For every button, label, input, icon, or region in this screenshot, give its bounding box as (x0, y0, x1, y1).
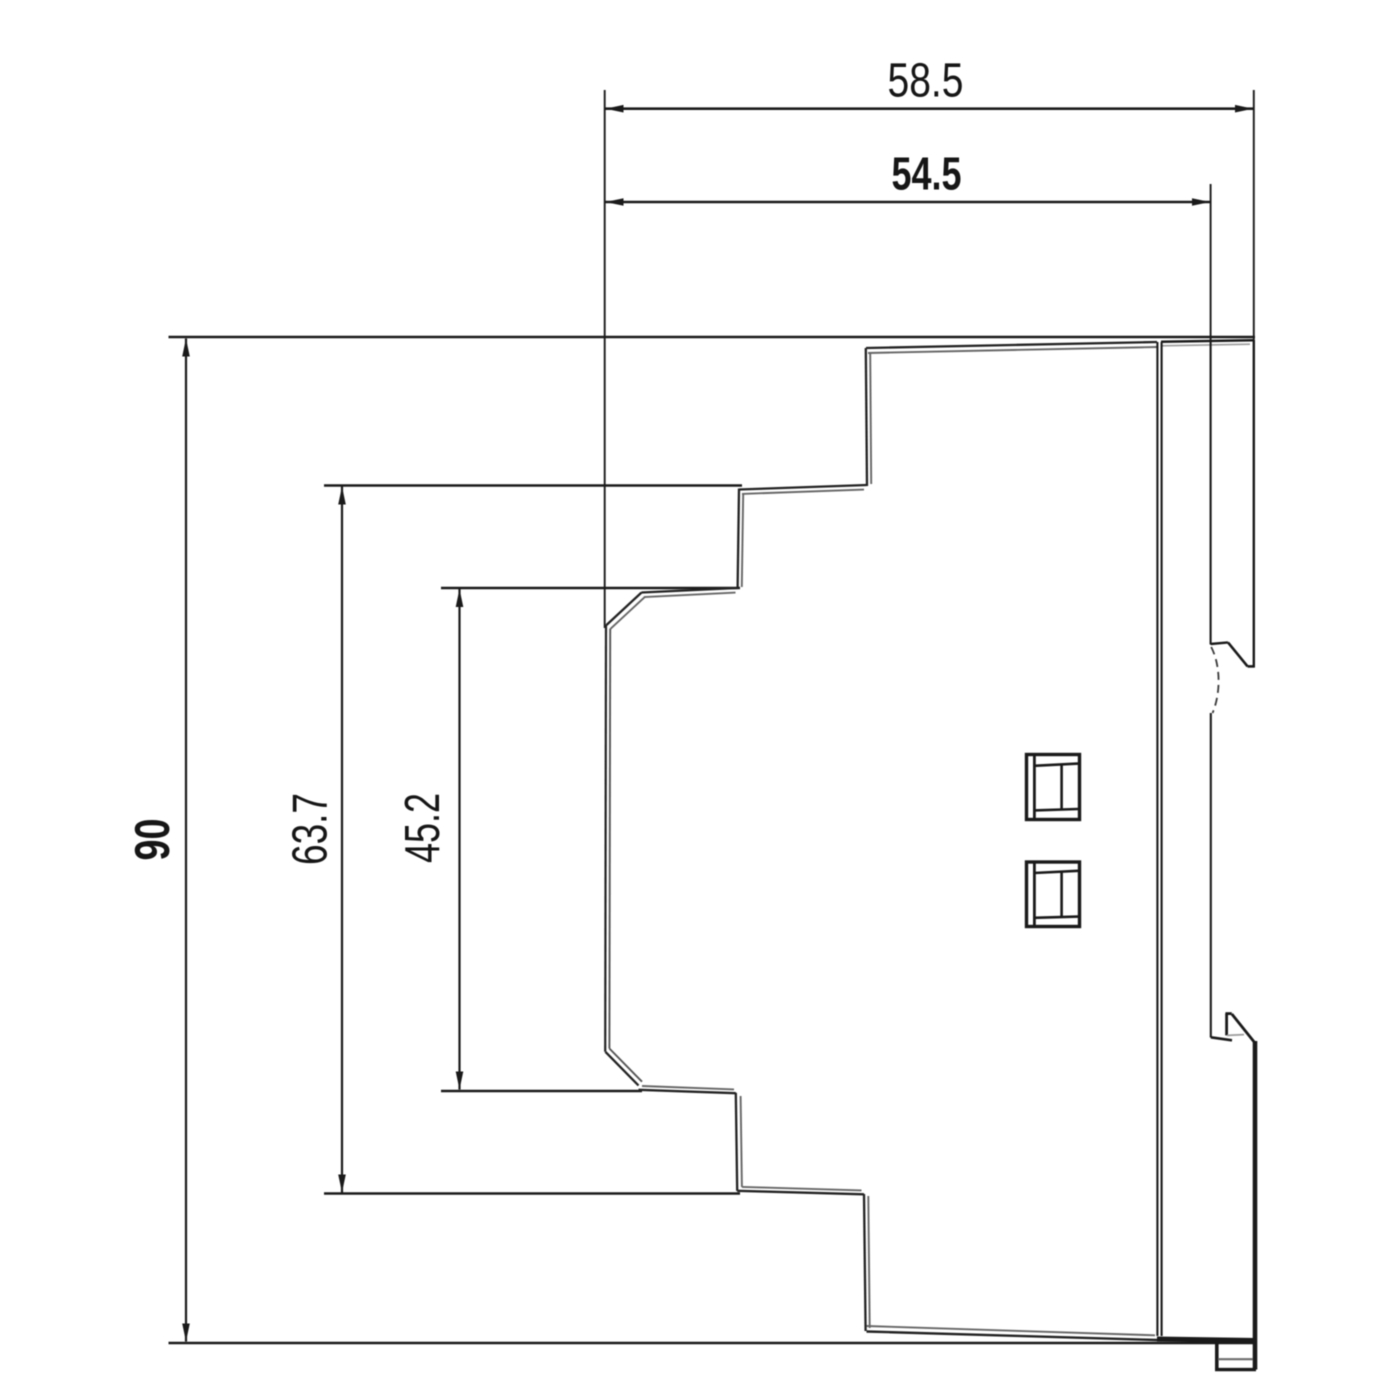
svg-text:90: 90 (126, 819, 180, 861)
svg-text:58.5: 58.5 (888, 55, 964, 108)
svg-text:54.5: 54.5 (892, 148, 962, 200)
svg-text:63.7: 63.7 (284, 793, 338, 865)
svg-text:45.2: 45.2 (396, 793, 450, 863)
